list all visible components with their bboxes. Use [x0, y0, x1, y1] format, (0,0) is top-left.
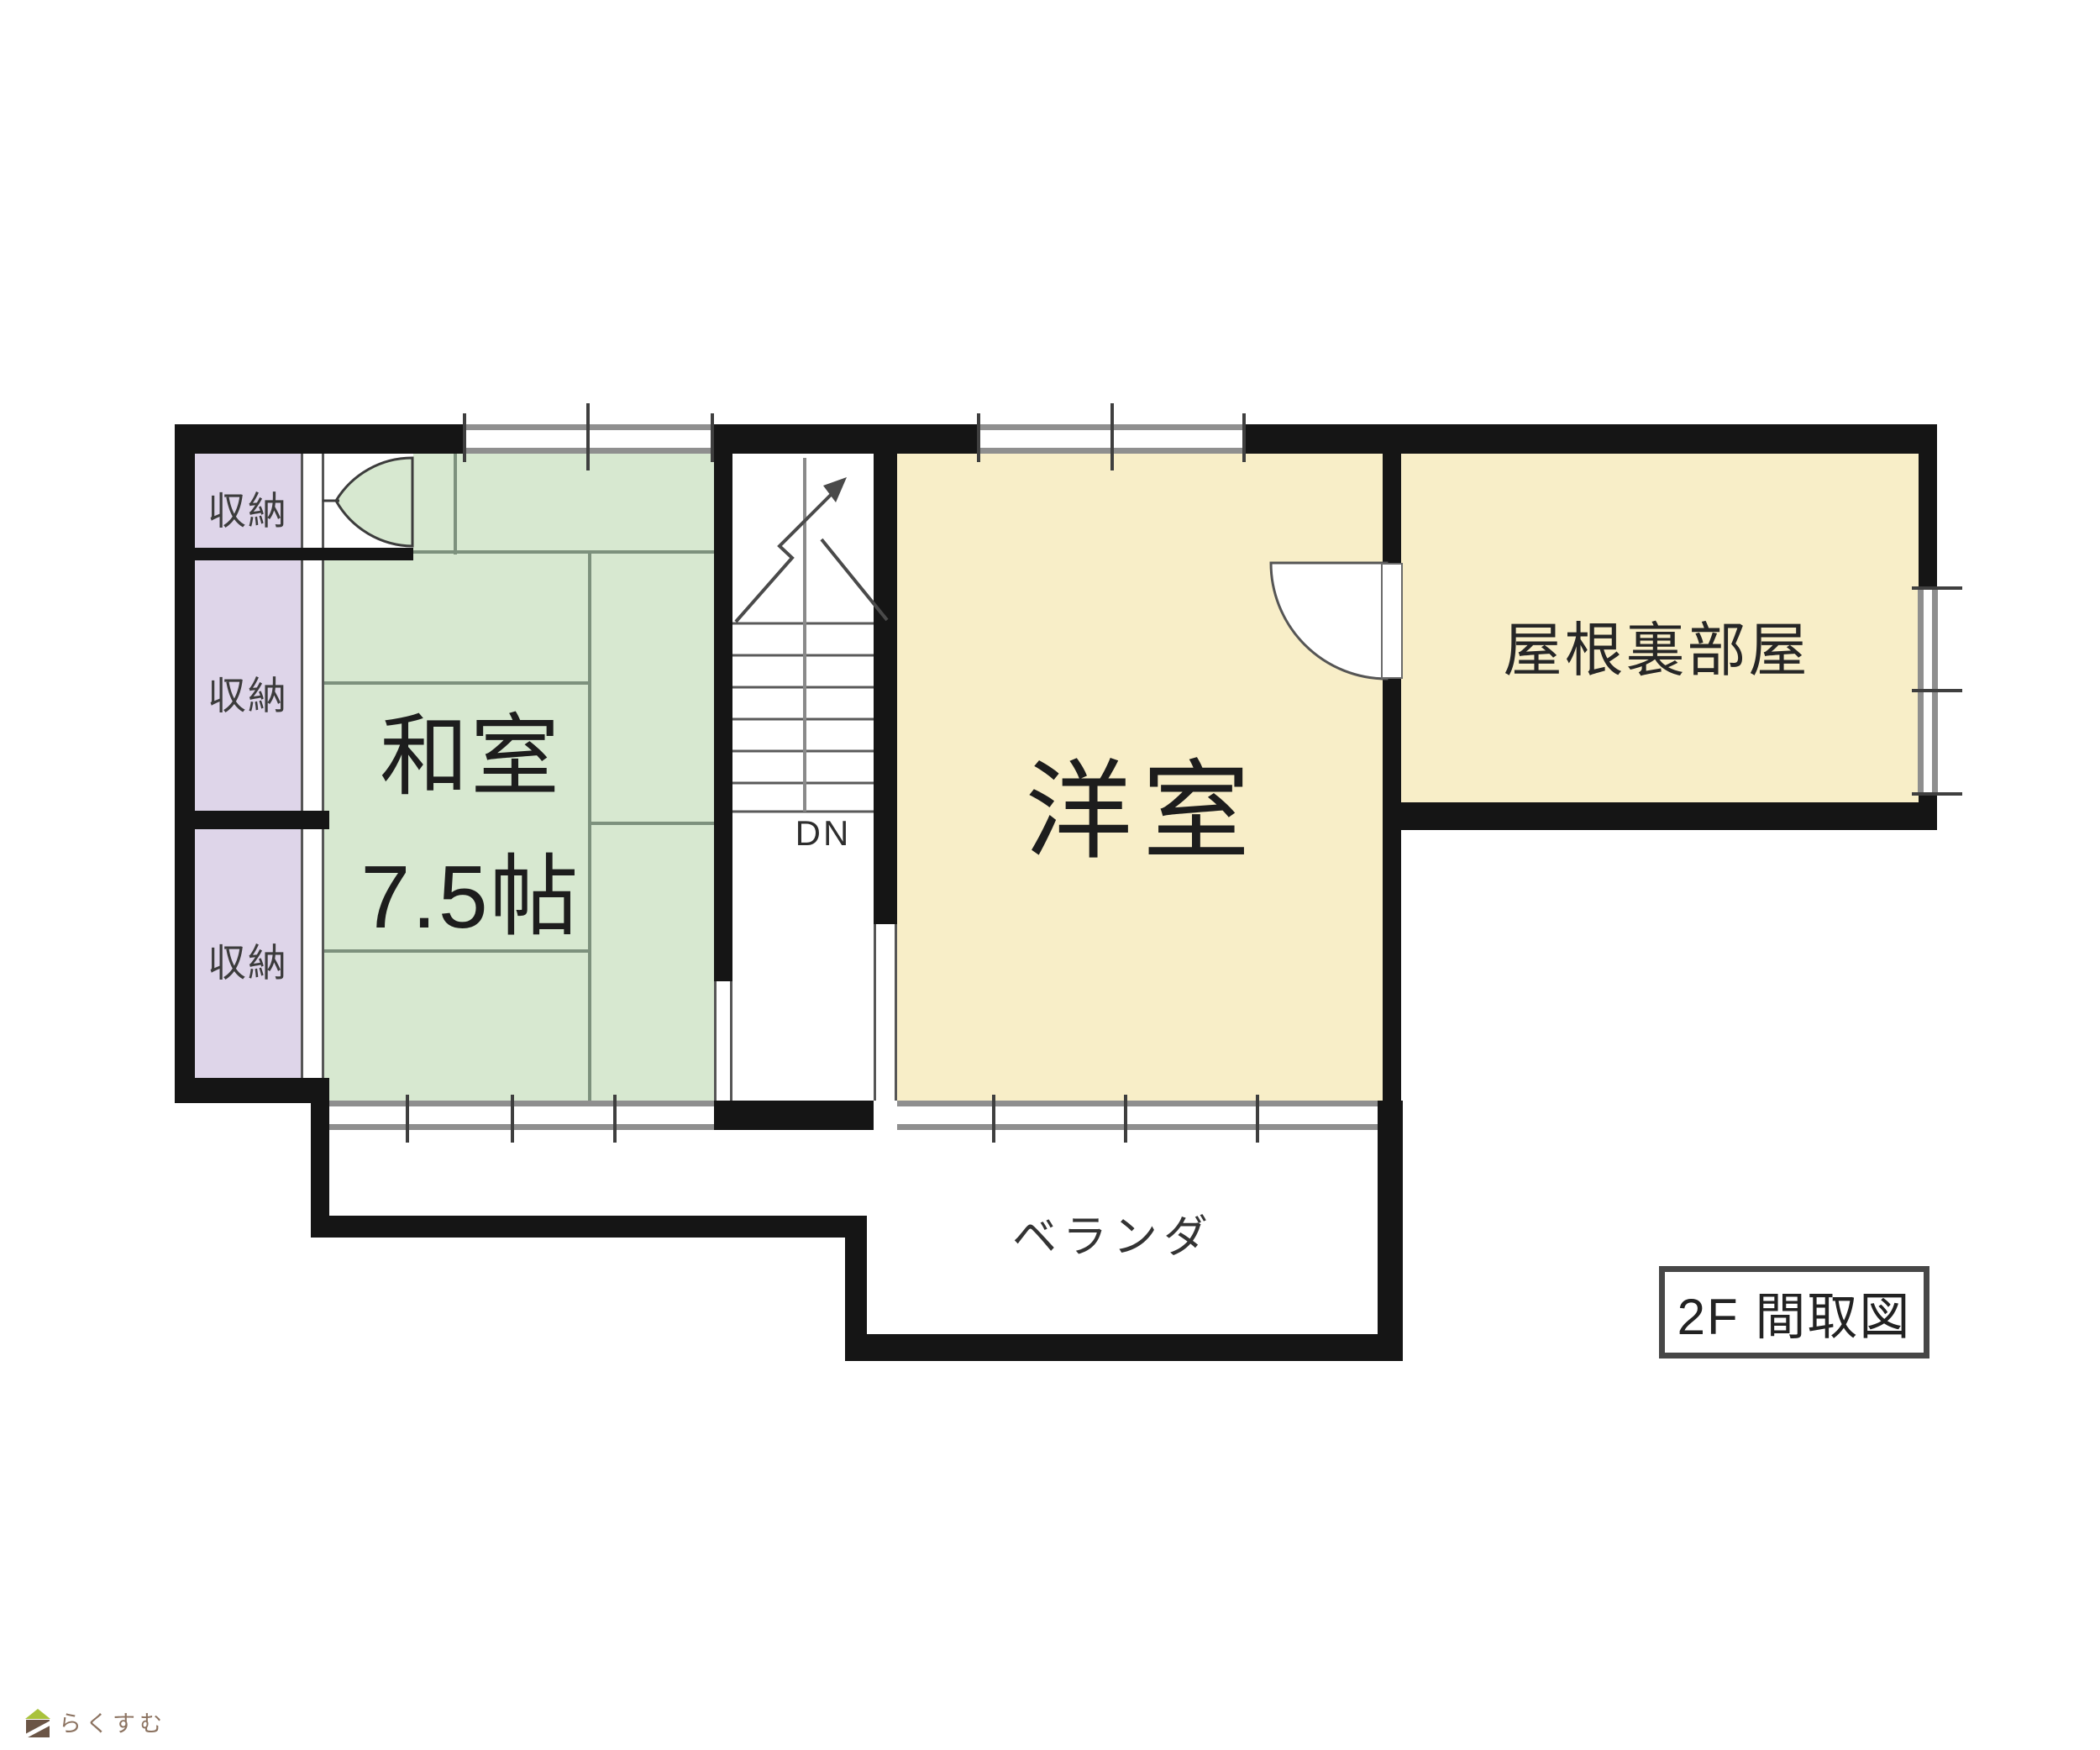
watermark-text: らくすむ: [59, 1713, 166, 1737]
attic-room-label: 屋根裏部屋: [1404, 603, 1908, 688]
wall-left: [175, 424, 195, 1103]
house-roof-icon: [25, 1709, 50, 1719]
wall-veranda-left-stub: [311, 1103, 329, 1216]
stairs-dn-label: DN: [773, 813, 874, 854]
tatami-line: [324, 681, 591, 685]
western-stair-sliding-door: [874, 924, 897, 1101]
floorplan-canvas: 収納 収納 収納 和室 7.5帖 DN 洋室 屋根裏部屋 ベランダ 2F 間取図…: [0, 0, 2100, 1750]
storage-1-sliding-door: [301, 454, 324, 548]
wall-bottom-under-stairs: [714, 1101, 874, 1130]
wall-attic-right-upper: [1919, 454, 1937, 588]
wall-veranda-right: [1378, 1130, 1403, 1361]
house-body-icon: [26, 1720, 50, 1737]
window-washitsu-top: [465, 424, 714, 454]
stair-treads: [732, 623, 874, 812]
house-logo-icon: [25, 1709, 50, 1737]
window-washitsu-bottom: [329, 1101, 714, 1130]
wall-storage3-bottom: [175, 1078, 329, 1103]
washitsu-name: 和室: [269, 687, 672, 828]
window-western-bottom: [897, 1101, 1378, 1130]
stair-arrow-icon: [736, 491, 835, 622]
tatami-line: [454, 454, 457, 554]
wall-bottom-corner: [1378, 1101, 1403, 1130]
window-western-top: [979, 424, 1246, 454]
wall-stair-left: [714, 454, 732, 981]
veranda-label: ベランダ: [928, 1201, 1298, 1265]
wall-divider-upper: [1383, 454, 1401, 563]
tatami-line: [413, 550, 714, 554]
floor-plan-title-box: 2F 間取図: [1659, 1266, 1929, 1358]
watermark: らくすむ: [25, 1709, 166, 1737]
wall-storage1-bottom: [175, 548, 413, 560]
window-attic-right: [1918, 588, 1938, 794]
washitsu-size: 7.5帖: [269, 828, 672, 968]
attic-door-panel: [1382, 564, 1402, 678]
washitsu-room-label: 和室 7.5帖: [269, 687, 672, 969]
washitsu-stair-sliding-door: [714, 981, 732, 1101]
wall-attic-right-lower: [1919, 794, 1937, 830]
floor-plan-title: 2F 間取図: [1677, 1276, 1912, 1349]
storage-1-label: 収納: [195, 481, 301, 536]
wall-attic-bottom: [1383, 802, 1937, 830]
wall-veranda-bottom: [845, 1334, 1403, 1361]
wall-veranda-step-h: [311, 1216, 867, 1238]
western-room-label: 洋室: [890, 724, 1394, 880]
stair-arrow-head: [823, 477, 847, 502]
washitsu-entry-vestibule: [324, 454, 413, 548]
